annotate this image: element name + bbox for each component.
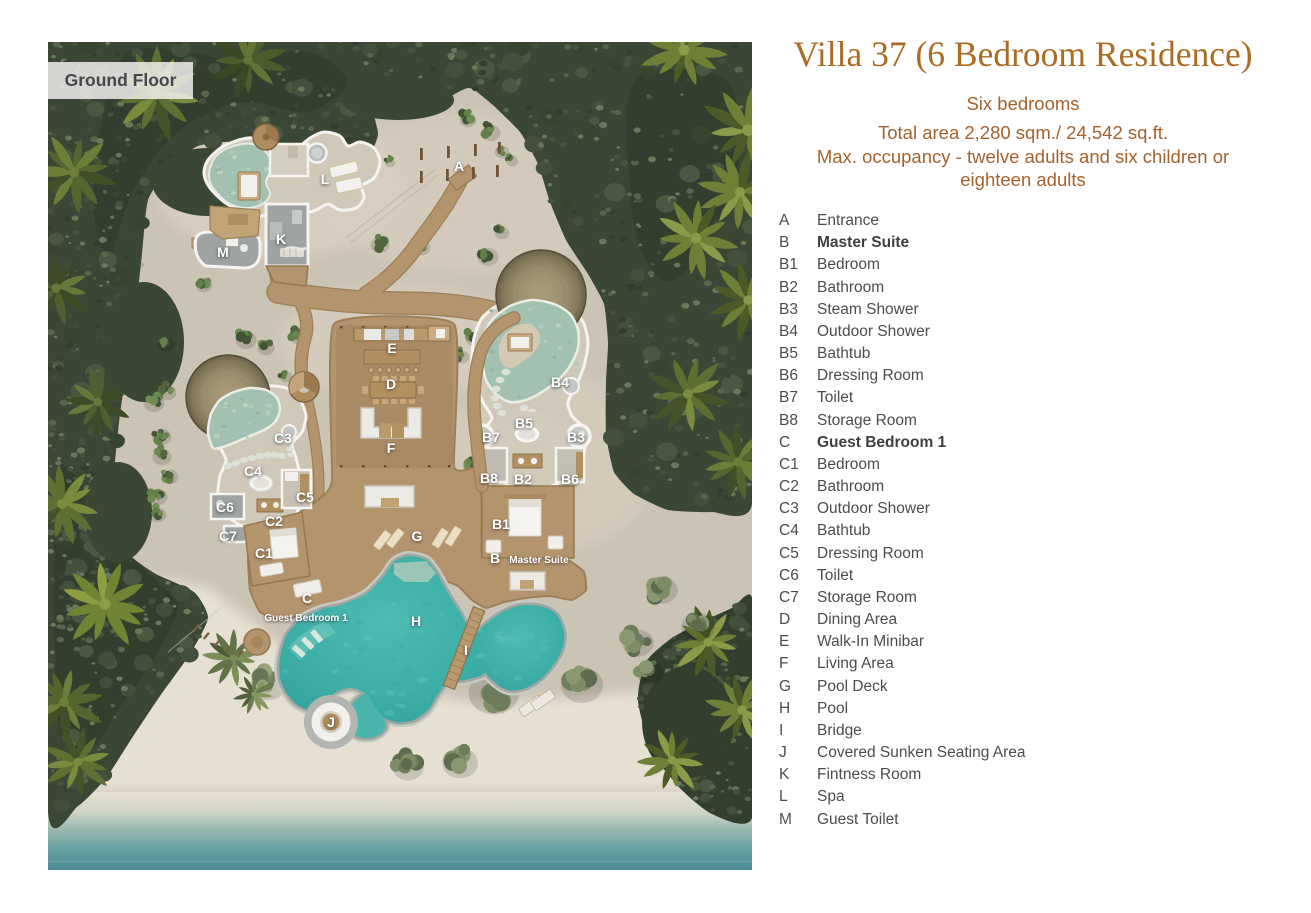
svg-text:K: K (276, 231, 286, 247)
svg-text:D: D (386, 376, 396, 392)
svg-text:C6: C6 (216, 499, 234, 515)
svg-text:C1: C1 (255, 545, 273, 561)
svg-text:C4: C4 (244, 463, 262, 479)
svg-text:B7: B7 (482, 429, 500, 445)
svg-text:C: C (302, 590, 312, 606)
svg-text:B1: B1 (492, 516, 510, 532)
svg-text:B3: B3 (567, 429, 585, 445)
svg-text:E: E (387, 340, 396, 356)
svg-text:C2: C2 (265, 513, 283, 529)
svg-text:C5: C5 (296, 489, 314, 505)
svg-text:B5: B5 (515, 415, 533, 431)
svg-text:Guest Bedroom 1: Guest Bedroom 1 (264, 613, 348, 624)
svg-text:H: H (411, 613, 421, 629)
svg-text:B6: B6 (561, 471, 579, 487)
svg-text:Master Suite: Master Suite (509, 555, 569, 566)
svg-text:B8: B8 (480, 470, 498, 486)
svg-text:F: F (387, 440, 396, 456)
svg-text:A: A (454, 158, 464, 174)
svg-text:M: M (217, 244, 229, 260)
svg-text:B: B (490, 550, 500, 566)
svg-text:B4: B4 (551, 374, 569, 390)
svg-text:B2: B2 (514, 471, 532, 487)
svg-text:C7: C7 (219, 528, 237, 544)
svg-text:G: G (412, 528, 423, 544)
svg-text:L: L (321, 171, 330, 187)
svg-text:C3: C3 (274, 430, 292, 446)
svg-text:J: J (327, 714, 335, 730)
svg-text:I: I (464, 642, 468, 658)
